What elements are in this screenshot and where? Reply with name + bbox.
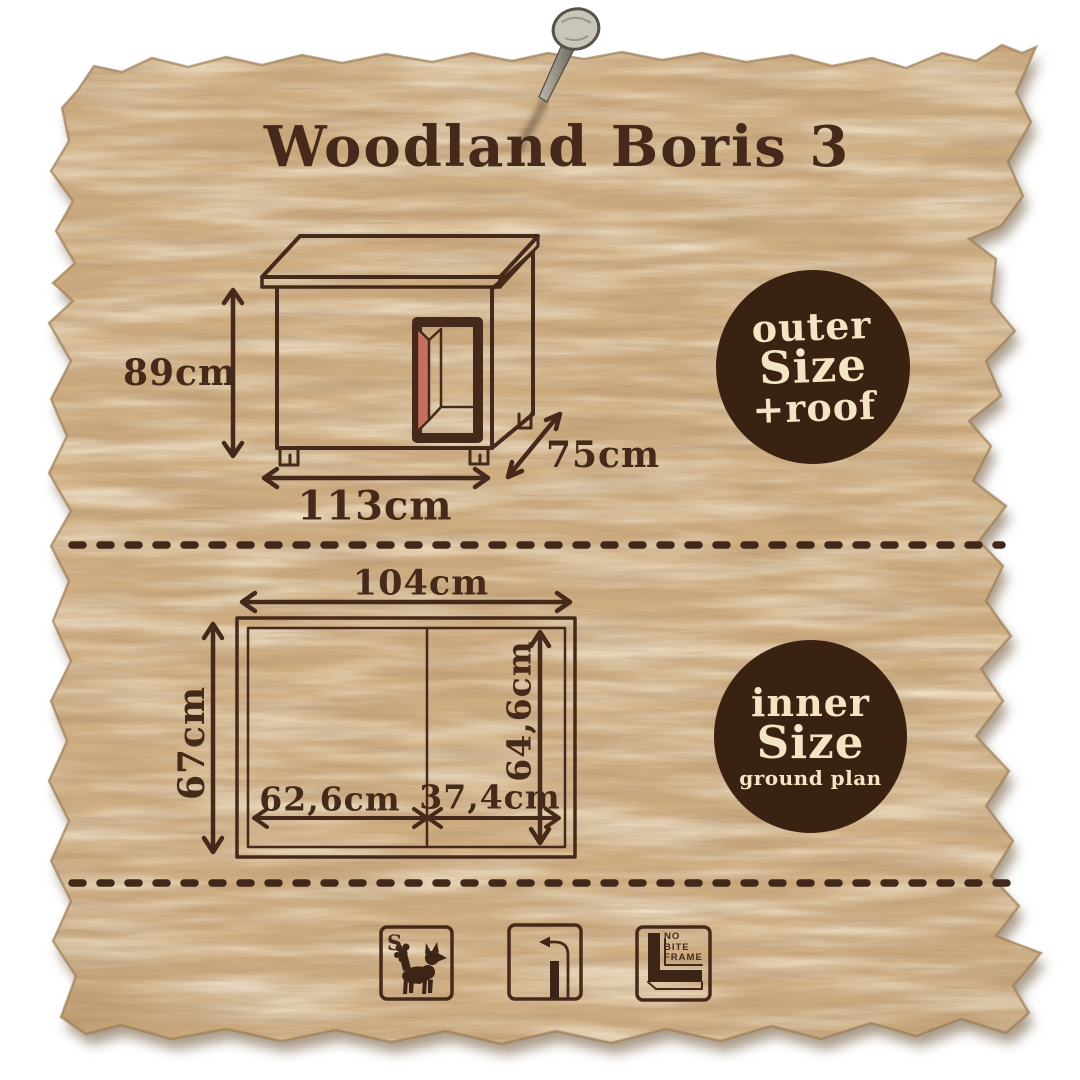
no-bite-line3: FRAME (664, 953, 708, 964)
no-bite-line1: NO (664, 932, 708, 943)
size-letter: S (387, 930, 402, 955)
outer-size-badge: outer Size +roof (716, 270, 910, 464)
nail-head (549, 4, 603, 54)
product-dimension-poster: Woodland Boris 3 89cm 113cm 75cm 104cm 6… (0, 0, 1080, 1080)
inner-badge-line2: Size (757, 721, 865, 765)
no-bite-frame-text: NO BITE FRAME (664, 932, 708, 964)
dim-inner-right-width: 37,4cm (419, 778, 560, 817)
inner-size-badge: inner Size ground plan (714, 640, 907, 833)
poster-title: Woodland Boris 3 (264, 114, 851, 180)
dim-outer-width: 113cm (297, 483, 452, 530)
dim-inner-width: 104cm (353, 563, 489, 604)
dim-outer-height: 89cm (123, 352, 237, 394)
outer-badge-line3: +roof (752, 387, 877, 429)
dim-outer-depth: 75cm (546, 434, 660, 476)
inner-badge-sub: ground plan (739, 769, 881, 789)
dim-inner-height: 67cm (171, 686, 213, 800)
dim-inner-inner-height: 64,6cm (500, 640, 539, 781)
door-panel-open (417, 328, 429, 432)
dim-inner-left-width: 62,6cm (259, 780, 400, 819)
